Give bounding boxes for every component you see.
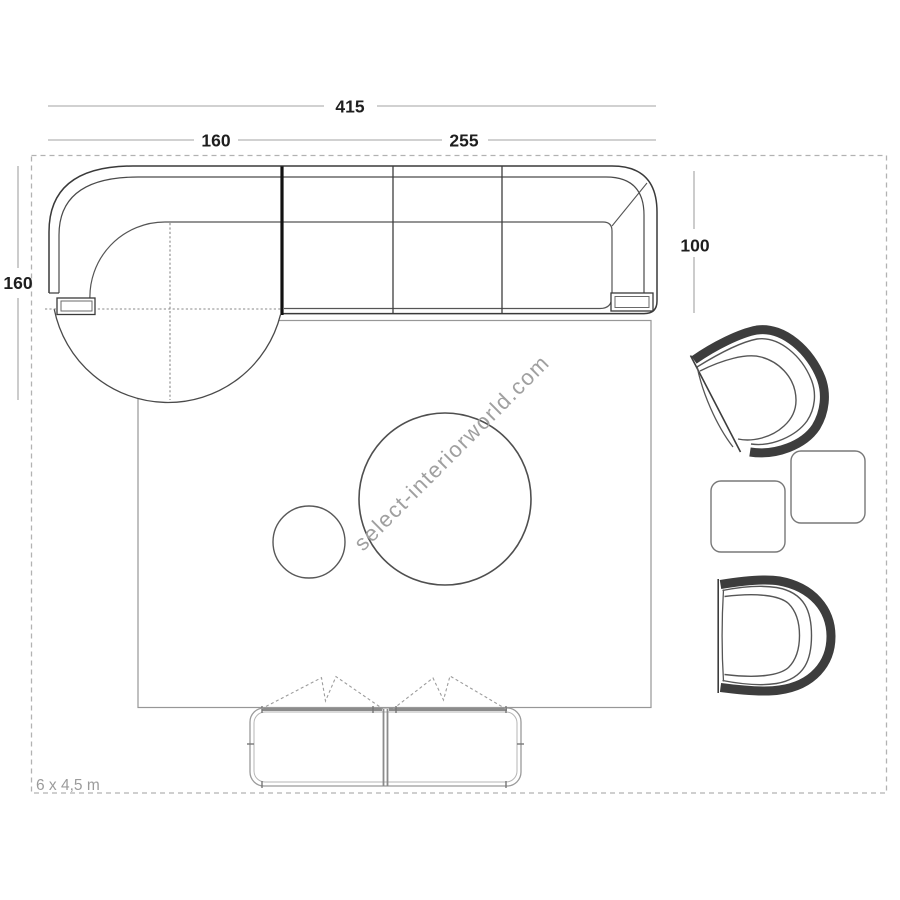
svg-text:415: 415: [335, 97, 364, 117]
svg-text:100: 100: [680, 236, 709, 256]
svg-text:160: 160: [201, 131, 230, 151]
svg-text:255: 255: [449, 131, 478, 151]
svg-text:6 x 4,5 m: 6 x 4,5 m: [36, 777, 100, 794]
svg-text:160: 160: [3, 273, 32, 293]
